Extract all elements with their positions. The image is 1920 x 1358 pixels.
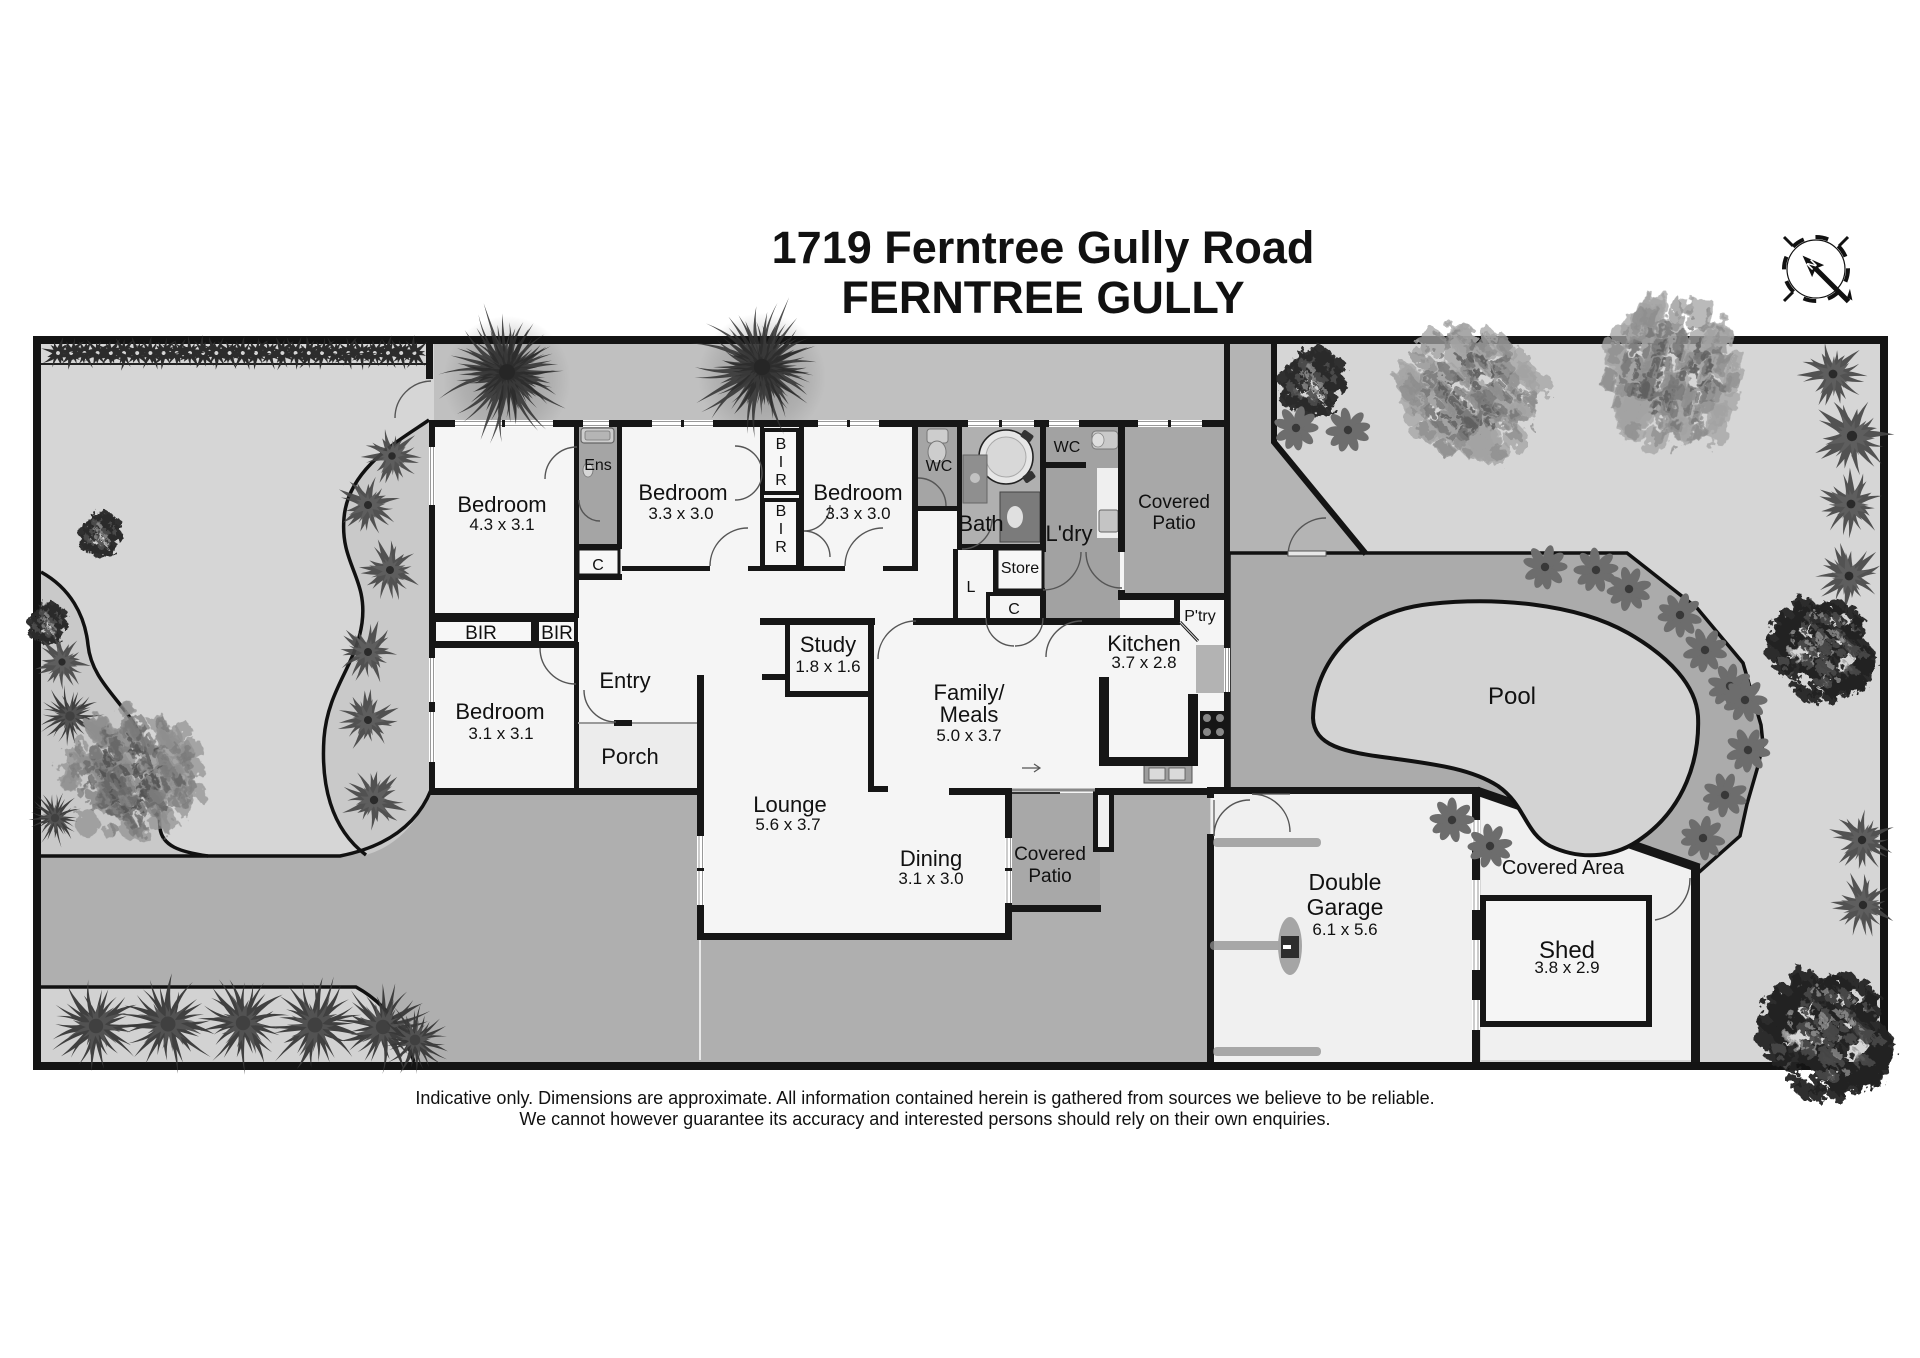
svg-text:B: B <box>776 503 787 520</box>
svg-text:Bath: Bath <box>958 511 1003 536</box>
svg-text:BIR: BIR <box>541 623 573 644</box>
svg-text:C: C <box>1008 601 1020 618</box>
svg-text:3.3 x 3.0: 3.3 x 3.0 <box>825 504 890 523</box>
svg-text:Bedroom: Bedroom <box>813 480 902 505</box>
svg-text:FERNTREE GULLY: FERNTREE GULLY <box>841 272 1244 323</box>
svg-text:Dining: Dining <box>900 846 962 871</box>
svg-text:Double: Double <box>1309 869 1382 895</box>
svg-text:We cannot however guarantee it: We cannot however guarantee its accuracy… <box>519 1109 1330 1129</box>
svg-text:Patio: Patio <box>1152 513 1195 534</box>
svg-text:I: I <box>779 454 783 471</box>
svg-text:Porch: Porch <box>601 744 658 769</box>
svg-text:BIR: BIR <box>465 623 497 644</box>
svg-text:R: R <box>775 539 787 556</box>
svg-text:P'try: P'try <box>1184 608 1216 625</box>
svg-text:Pool: Pool <box>1488 683 1536 710</box>
svg-text:C: C <box>592 557 604 574</box>
svg-text:3.1 x 3.1: 3.1 x 3.1 <box>468 724 533 743</box>
svg-text:Meals: Meals <box>940 702 999 727</box>
svg-text:WC: WC <box>926 458 953 475</box>
svg-text:Patio: Patio <box>1028 866 1071 887</box>
svg-text:Store: Store <box>1001 560 1039 577</box>
svg-text:Study: Study <box>800 632 856 657</box>
svg-text:4.3 x 3.1: 4.3 x 3.1 <box>469 515 534 534</box>
svg-text:Covered: Covered <box>1138 492 1210 513</box>
svg-text:Covered: Covered <box>1014 844 1086 865</box>
svg-text:5.6 x 3.7: 5.6 x 3.7 <box>755 815 820 834</box>
svg-text:1.8 x 1.6: 1.8 x 1.6 <box>795 657 860 676</box>
svg-text:Bedroom: Bedroom <box>457 492 546 517</box>
svg-text:I: I <box>779 521 783 538</box>
svg-text:L'dry: L'dry <box>1046 521 1093 546</box>
svg-text:Bedroom: Bedroom <box>638 480 727 505</box>
svg-text:Lounge: Lounge <box>753 792 826 817</box>
svg-text:5.0 x 3.7: 5.0 x 3.7 <box>936 726 1001 745</box>
svg-text:L: L <box>967 579 976 596</box>
svg-text:Entry: Entry <box>599 668 650 693</box>
svg-text:Bedroom: Bedroom <box>455 699 544 724</box>
svg-text:3.3 x 3.0: 3.3 x 3.0 <box>648 504 713 523</box>
svg-text:B: B <box>776 436 787 453</box>
svg-text:3.7 x 2.8: 3.7 x 2.8 <box>1111 653 1176 672</box>
svg-text:R: R <box>775 472 787 489</box>
svg-text:6.1 x 5.6: 6.1 x 5.6 <box>1312 920 1377 939</box>
svg-text:3.1 x 3.0: 3.1 x 3.0 <box>898 869 963 888</box>
svg-text:Garage: Garage <box>1307 894 1384 920</box>
svg-text:3.8 x 2.9: 3.8 x 2.9 <box>1534 958 1599 977</box>
svg-text:Ens: Ens <box>584 457 612 474</box>
svg-text:Indicative only. Dimensions ar: Indicative only. Dimensions are approxim… <box>415 1088 1434 1108</box>
svg-text:WC: WC <box>1054 439 1081 456</box>
svg-text:1719 Ferntree Gully Road: 1719 Ferntree Gully Road <box>772 222 1315 273</box>
svg-text:Covered Area: Covered Area <box>1502 857 1625 879</box>
